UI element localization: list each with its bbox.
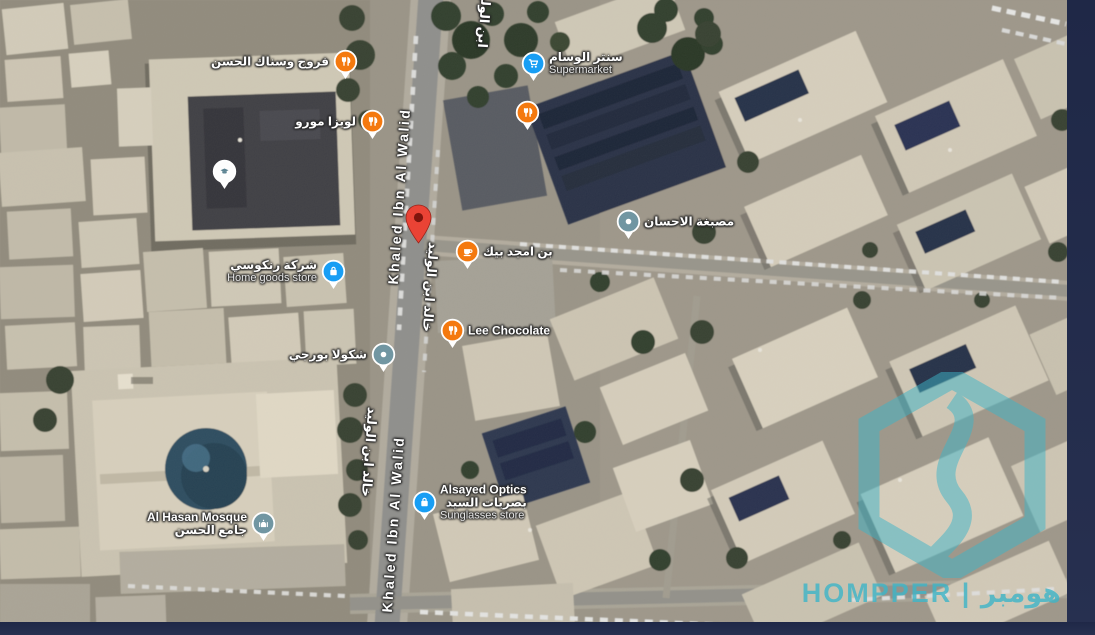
poi-pin-lee-chocolate[interactable] [440,318,465,349]
poi-label-chocola-borji[interactable]: شكولا بورجي [289,349,367,362]
poi-pin-center-alwissam[interactable] [521,51,546,82]
bottom-letterbox-band [0,622,1095,635]
street-label-3: Khaled Ibn Al Walid [379,435,407,613]
poi-pin-farrouj-snack-alhasan[interactable] [333,49,358,80]
poi-pin-chocola-borji[interactable] [371,342,396,373]
poi-pin-school-unlabeled[interactable] [212,159,237,190]
poi-label-lee-chocolate[interactable]: Lee Chocolate [468,325,550,338]
poi-pin-bon-amjad-bek[interactable] [455,239,480,270]
street-label-4: ابن الوليد [474,0,494,48]
poi-label-masbagha-alihsan[interactable]: مصبغة الاحسان [644,216,734,229]
poi-pin-al-hasan-mosque[interactable] [251,511,276,542]
street-label-1: خالد ابن الوليد [419,242,441,333]
poi-pin-masbagha-alihsan[interactable] [616,209,641,240]
poi-pin-alsayed-optics[interactable] [412,490,437,521]
poi-label-center-alwissam[interactable]: سنتر الوسامSupermarket [549,51,623,77]
poi-layer: فروج وسناك الحسنسنتر الوسامSupermarketلو… [0,0,1095,635]
poi-label-rankousi-home-goods[interactable]: شركة رنكوسيHome goods store [227,259,317,285]
poi-pin-restaurant-unlabeled[interactable] [515,100,540,131]
poi-label-alsayed-optics[interactable]: Alsayed Opticsبصريات السيدSunglasses sto… [440,484,527,523]
destination-pin[interactable] [405,204,432,249]
hompper-watermark: HOMPPER | هومبر [802,578,1061,609]
poi-label-bon-amjad-bek[interactable]: بن امجد بيك [483,246,553,259]
poi-pin-rankousi-home-goods[interactable] [321,259,346,290]
street-label-2: خالد ابن الوليد [358,407,380,498]
right-letterbox-band [1067,0,1095,635]
map-canvas[interactable]: فروج وسناك الحسنسنتر الوسامSupermarketلو… [0,0,1095,635]
poi-label-farrouj-snack-alhasan[interactable]: فروج وسناك الحسن [211,56,329,69]
poi-label-louiza-moro[interactable]: لويزا مورو [295,116,356,129]
poi-label-al-hasan-mosque[interactable]: Al Hasan Mosqueجامع الحسن [147,511,247,537]
street-label-0: Khaled Ibn Al Walid [385,107,413,285]
poi-pin-louiza-moro[interactable] [360,109,385,140]
